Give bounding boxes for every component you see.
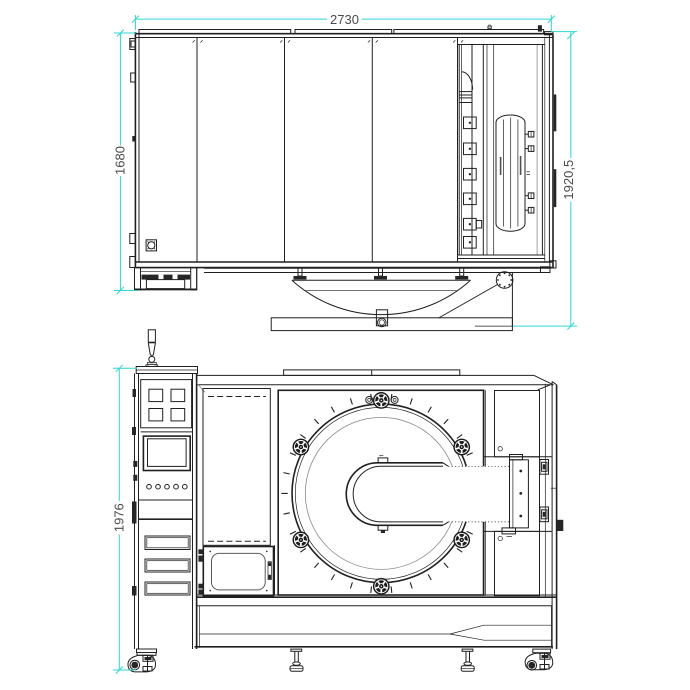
svg-text:1680: 1680 bbox=[113, 146, 128, 175]
svg-text:1920,5: 1920,5 bbox=[561, 160, 576, 200]
svg-text:1976: 1976 bbox=[112, 503, 127, 532]
svg-text:2730: 2730 bbox=[330, 12, 359, 27]
